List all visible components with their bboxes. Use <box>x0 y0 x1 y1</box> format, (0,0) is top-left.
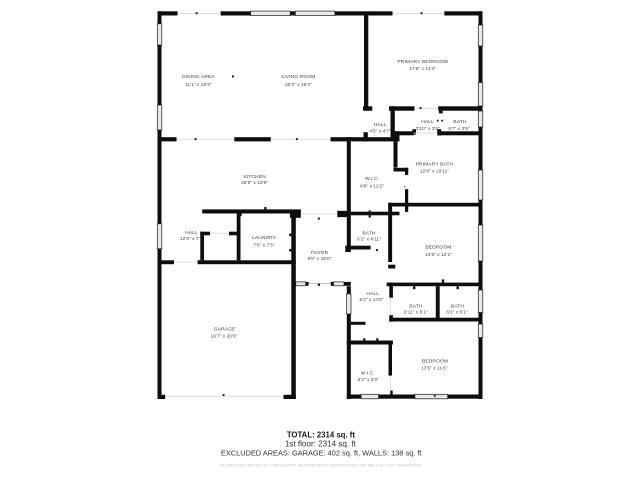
svg-text:LIVING ROOM: LIVING ROOM <box>282 74 316 80</box>
svg-text:PRIMARY BATH: PRIMARY BATH <box>416 161 454 167</box>
svg-text:BATH: BATH <box>451 303 465 309</box>
svg-text:HALL: HALL <box>374 122 387 128</box>
svg-text:7'5" x 7'5": 7'5" x 7'5" <box>253 243 275 248</box>
svg-text:HALL: HALL <box>366 291 379 297</box>
svg-text:6'2" x 5'1": 6'2" x 5'1" <box>446 309 468 314</box>
svg-text:6'2" x 4'11": 6'2" x 4'11" <box>357 237 381 242</box>
svg-text:FLOOR PLAN CREATED BY CUBICASA: FLOOR PLAN CREATED BY CUBICASA APP. MEAS… <box>221 463 422 467</box>
svg-text:1st floor: 2314 sq. ft: 1st floor: 2314 sq. ft <box>285 439 357 448</box>
svg-text:6'11" x 5'1": 6'11" x 5'1" <box>404 309 428 314</box>
svg-text:6'2" x 8'0": 6'2" x 8'0" <box>358 377 380 382</box>
svg-text:KITCHEN: KITCHEN <box>243 174 266 180</box>
svg-text:HALL: HALL <box>421 119 434 125</box>
svg-text:13'5" x 11'6": 13'5" x 11'6" <box>421 365 448 370</box>
svg-text:BEDROOM: BEDROOM <box>425 245 451 251</box>
svg-text:6'2" x 14'5": 6'2" x 14'5" <box>359 297 383 302</box>
svg-text:W.I.C.: W.I.C. <box>361 370 375 376</box>
svg-text:BATH: BATH <box>409 303 423 309</box>
svg-text:28'9" x 10'9": 28'9" x 10'9" <box>241 180 268 185</box>
svg-text:FOYER: FOYER <box>311 250 329 256</box>
svg-text:GARAGE: GARAGE <box>214 327 236 333</box>
svg-text:HALL: HALL <box>185 230 198 236</box>
svg-text:BATH: BATH <box>362 231 376 237</box>
svg-text:DINING AREA: DINING AREA <box>182 74 215 80</box>
svg-text:TOTAL: 2314 sq. ft: TOTAL: 2314 sq. ft <box>287 430 356 439</box>
svg-text:LAUNDRY: LAUNDRY <box>252 235 277 241</box>
svg-text:EXCLUDED AREAS: GARAGE: 402 sq: EXCLUDED AREAS: GARAGE: 402 sq. ft, WALL… <box>221 448 422 457</box>
svg-text:20'2" x 19'3": 20'2" x 19'3" <box>285 82 312 87</box>
svg-text:PRIMARY BEDROOM: PRIMARY BEDROOM <box>397 59 448 65</box>
svg-text:12'9" x 10'11": 12'9" x 10'11" <box>420 168 449 173</box>
svg-text:19'7" x 20'6": 19'7" x 20'6" <box>211 333 238 338</box>
svg-text:3'10" x 3'5": 3'10" x 3'5" <box>416 126 440 131</box>
svg-text:4'5" x 4'7": 4'5" x 4'7" <box>369 128 391 133</box>
svg-text:BATH: BATH <box>453 119 467 125</box>
svg-text:11'1" x 19'3": 11'1" x 19'3" <box>185 82 212 87</box>
svg-text:8'8" x 11'2": 8'8" x 11'2" <box>360 183 384 188</box>
svg-text:17'5" x 14'4": 17'5" x 14'4" <box>409 66 436 71</box>
svg-text:8'8" x 10'0": 8'8" x 10'0" <box>307 256 331 261</box>
svg-text:W.I.C.: W.I.C. <box>365 176 379 182</box>
svg-text:13'5" x 12'1": 13'5" x 12'1" <box>425 252 452 257</box>
svg-text:BEDROOM: BEDROOM <box>422 358 448 364</box>
svg-text:5'7" x 3'5": 5'7" x 3'5" <box>448 126 470 131</box>
